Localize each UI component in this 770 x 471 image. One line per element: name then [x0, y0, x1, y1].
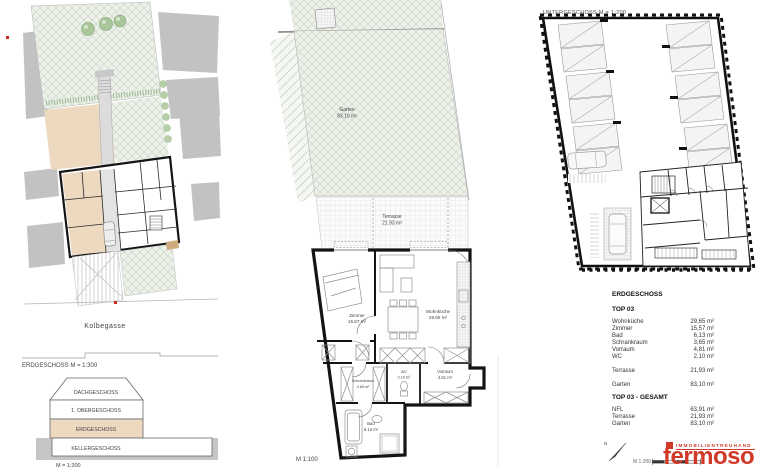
summary-row: Schrankraum 3,65 m²: [612, 340, 714, 347]
summary-row-value: 21,93 m²: [690, 414, 714, 421]
room-label-bad: Bad: [367, 421, 375, 426]
summary-row-value: 83,10 m²: [690, 421, 714, 428]
dining-table-icon: [388, 300, 418, 339]
room-label-schrankraum: Schrankraum: [352, 379, 375, 383]
footer-scale-label: M 1:200: [633, 459, 651, 465]
garden-area: [294, 29, 468, 196]
section-level-dach: DACHGESCHOSS: [74, 390, 119, 396]
summary-row: WC 2,10 m²: [612, 354, 714, 361]
site-garden-lower: [110, 96, 169, 163]
room-label-garten: Garten: [339, 107, 355, 113]
car-icon: [103, 222, 116, 247]
site-garden-upper: [31, 2, 161, 109]
ramp-hatch-1: [568, 174, 606, 183]
site-front-garden: [120, 244, 177, 296]
summary-row-value: 63,91 m²: [690, 407, 714, 414]
site-driveway: [72, 251, 123, 306]
summary-row-label: WC: [612, 354, 622, 361]
summary-row-label: Terrasse: [612, 368, 635, 375]
apartment-plan-caption: M 1:100: [296, 457, 318, 463]
ramp-hatch-2: [590, 212, 599, 258]
room-area-wc: 2.10 m²: [398, 376, 412, 380]
summary-total-row: Terrasse 21,93 m²: [612, 414, 714, 421]
car-icon-basement-2: [609, 214, 626, 254]
summary-row-label: Bad: [612, 333, 623, 340]
area-summary: ERDGESCHOSS TOP 03 Wohnküche 29,65 m² Zi…: [612, 291, 714, 428]
room-label-zimmer: Zimmer: [349, 313, 365, 318]
summary-garden-row: Garten 83,10 m²: [612, 382, 714, 389]
summary-row: Wohnküche 29,65 m²: [612, 319, 714, 326]
bike-rack-2: [702, 250, 736, 259]
room-label-terrasse: Terrasse: [382, 214, 401, 220]
summary-row-value: 6,13 m²: [694, 333, 714, 340]
section-level-keller: KELLERGESCHOSS: [71, 446, 121, 452]
summary-row-value: 83,10 m²: [690, 382, 714, 389]
summary-total-row: NFL 63,91 m²: [612, 407, 714, 414]
summary-row-value: 29,65 m²: [690, 319, 714, 326]
site-plan-caption: ERDGESCHOSS M = 1:300: [22, 363, 98, 369]
summary-total-heading: TOP 03 - GESAMT: [612, 394, 714, 401]
section-level-og: 1. OBERGESCHOSS: [71, 408, 121, 414]
room-area-wohnkueche: 29.65 m²: [429, 315, 448, 320]
building-section: DACHGESCHOSS 1. OBERGESCHOSS ERDGESCHOSS…: [36, 378, 218, 469]
room-area-garten: 83.10 m²: [337, 114, 357, 120]
summary-row: Vorraum 4,81 m²: [612, 347, 714, 354]
room-area-schrankraum: 3.65 m²: [357, 385, 371, 389]
cellar-rooms: [640, 162, 750, 266]
north-arrow-icon: N: [602, 436, 632, 466]
summary-row: Zimmer 15,57 m²: [612, 326, 714, 333]
stair-icon: [150, 216, 162, 230]
summary-row-label: Wohnküche: [612, 319, 644, 326]
room-area-vorraum: 4.81 m²: [438, 375, 453, 380]
logo-brand: fermoso: [663, 445, 754, 469]
room-label-vorraum: Vorraum: [437, 369, 453, 374]
summary-row-label: NFL: [612, 407, 623, 414]
summary-row-value: 4,81 m²: [694, 347, 714, 354]
room-area-bad: 6.13 m²: [364, 427, 379, 432]
room-label-wc: WC: [401, 370, 408, 374]
floorplan-sheet: Kolbegasse ERDGESCHOSS M = 1:300 DACHGES…: [0, 0, 770, 471]
room-label-wohnkueche: Wohnküche: [426, 309, 451, 314]
car-icon-basement-1: [567, 151, 606, 170]
north-label: N: [604, 441, 607, 446]
summary-row-value: 21,93 m²: [690, 368, 714, 375]
summary-row-label: Schrankraum: [612, 340, 648, 347]
summary-row-label: Terrasse: [612, 414, 635, 421]
summary-row-value: 15,57 m²: [690, 326, 714, 333]
entrance-marker: [114, 301, 117, 304]
fermoso-logo: IMMOBILIENTREUHAND fermoso: [663, 441, 768, 468]
basement-plan: UNTERGESCHOSS M = 1:200: [540, 10, 754, 270]
summary-floor-heading: ERDGESCHOSS: [612, 291, 714, 298]
kitchen-counter-icon: [457, 262, 470, 347]
summary-row-label: Vorraum: [612, 347, 635, 354]
summary-total-row: Garten 83,10 m²: [612, 421, 714, 428]
summary-row: Bad 6,13 m²: [612, 333, 714, 340]
summary-row-label: Garten: [612, 382, 630, 389]
bike-rack-1: [655, 248, 697, 258]
summary-row-value: 2,10 m²: [694, 354, 714, 361]
summary-unit-heading: TOP 03: [612, 306, 714, 313]
garden-shed: [315, 8, 336, 29]
edge-marker: [6, 36, 9, 39]
section-caption: M = 1:300: [56, 463, 81, 469]
summary-row-value: 3,65 m²: [694, 340, 714, 347]
summary-terrace-row: Terrasse 21,93 m²: [612, 368, 714, 375]
garden-upper-strip: [289, 0, 443, 31]
site-building: [60, 157, 179, 257]
room-area-zimmer: 15.57 m²: [348, 319, 367, 324]
room-area-terrasse: 21.93 m²: [382, 221, 402, 227]
site-plan: Kolbegasse ERDGESCHOSS M = 1:300 DACHGES…: [6, 2, 221, 469]
street-label: Kolbegasse: [84, 323, 126, 330]
divider-line: [22, 353, 218, 358]
summary-row-label: Zimmer: [612, 326, 632, 333]
apartment-plan: Garten 83.10 m² Terrasse 21.93 m²: [270, 0, 498, 466]
summary-row-label: Garten: [612, 421, 630, 428]
section-level-eg: ERDGESCHOSS: [76, 427, 117, 433]
